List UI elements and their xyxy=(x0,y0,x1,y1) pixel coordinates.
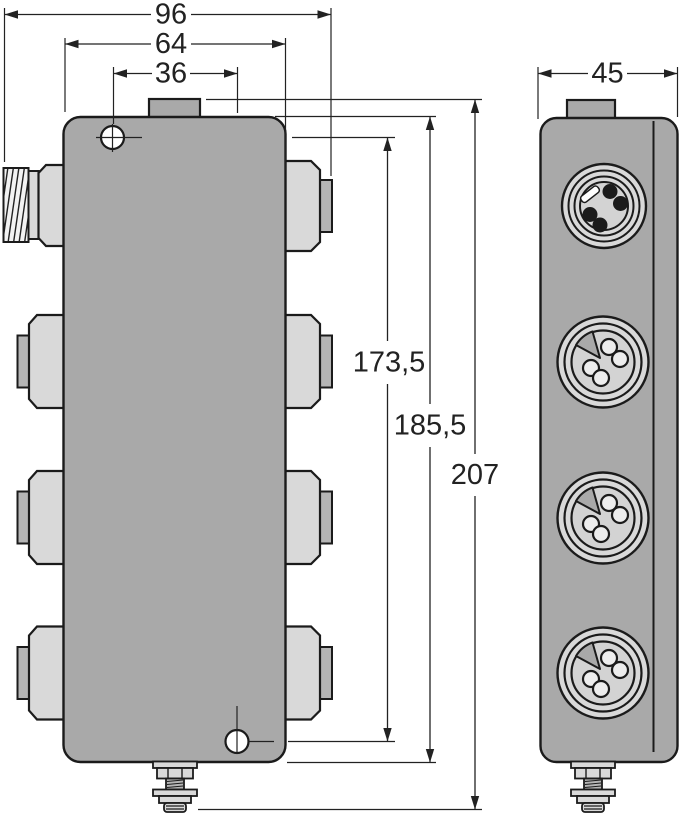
port-nut xyxy=(18,647,30,699)
ground-terminal-side xyxy=(571,762,615,813)
connector-flange xyxy=(29,627,66,720)
connector-flange xyxy=(283,627,320,720)
connector-flange xyxy=(283,161,320,251)
connector-flange xyxy=(283,315,320,408)
thread-collar xyxy=(29,171,39,239)
right-port-1 xyxy=(283,161,332,251)
dim-label-side-width: 45 xyxy=(591,58,623,90)
connector-flange xyxy=(283,471,320,564)
connector-flange xyxy=(29,471,66,564)
dim-label-overall-width: 96 xyxy=(155,0,187,31)
port-nut xyxy=(18,336,30,388)
front-housing-body xyxy=(64,117,286,762)
right-port-4 xyxy=(283,627,332,720)
port-nut xyxy=(18,492,30,544)
m12-connector-face-4 xyxy=(558,628,649,719)
connector-flange xyxy=(39,165,67,246)
m12-connector-face-2 xyxy=(558,317,649,408)
connector-flange xyxy=(29,315,66,408)
dim-label-overall-length: 207 xyxy=(451,459,499,491)
m12-connector-face-3 xyxy=(558,473,649,564)
dim-label-housing-width: 64 xyxy=(155,28,187,60)
m12-connector-face-1 xyxy=(562,164,646,248)
left-threaded-connector xyxy=(0,165,66,246)
dim-label-housing-length: 185,5 xyxy=(394,410,467,442)
right-port-3 xyxy=(283,471,332,564)
drawing-page: 96 64 36 45 173,5 xyxy=(0,0,681,816)
left-port-4 xyxy=(18,627,67,720)
dim-label-hole-offset-x: 36 xyxy=(155,58,187,90)
dim-label-hole-spacing: 173,5 xyxy=(353,347,426,379)
ground-terminal-front xyxy=(153,762,197,813)
left-port-3 xyxy=(18,471,67,564)
front-view xyxy=(0,99,332,812)
right-port-2 xyxy=(283,315,332,408)
drawing-canvas: 96 64 36 45 173,5 xyxy=(0,0,681,816)
side-view xyxy=(541,100,678,812)
left-port-2 xyxy=(18,315,67,408)
